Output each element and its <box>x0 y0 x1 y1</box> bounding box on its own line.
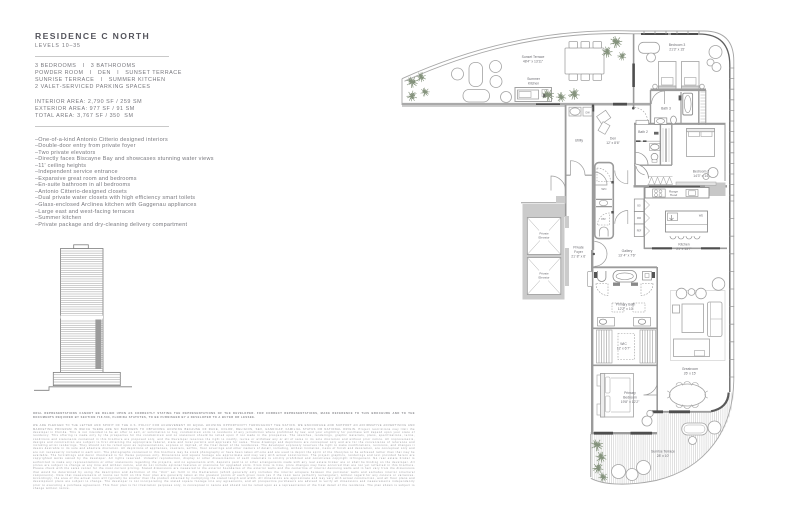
svg-text:Sunset Terrace: Sunset Terrace <box>522 55 545 59</box>
svg-text:28' x 10': 28' x 10' <box>657 454 670 458</box>
svg-text:WD: WD <box>699 213 703 217</box>
svg-text:19'8" x 12'2": 19'8" x 12'2" <box>621 400 640 404</box>
svg-text:Elevator: Elevator <box>538 235 549 239</box>
svg-text:Primary: Primary <box>624 391 636 395</box>
svg-text:Sunrise Terrace: Sunrise Terrace <box>651 450 675 454</box>
svg-text:21'3" x 15': 21'3" x 15' <box>669 48 685 52</box>
svg-text:BO: BO <box>637 206 641 208</box>
svg-text:12' x 6'7": 12' x 6'7" <box>617 347 631 351</box>
svg-text:Greatroom: Greatroom <box>682 367 698 371</box>
svg-text:Utility: Utility <box>575 139 584 143</box>
svg-text:48'4" x 13'11": 48'4" x 13'11" <box>523 60 544 64</box>
svg-text:Bedroom 2: Bedroom 2 <box>693 170 710 174</box>
svg-text:12'2" x 10': 12'2" x 10' <box>618 307 634 311</box>
svg-text:12' x 8'6": 12' x 8'6" <box>606 141 620 145</box>
svg-text:Kitchen: Kitchen <box>678 243 689 247</box>
svg-text:Bath 3: Bath 3 <box>661 107 671 111</box>
svg-text:14'3" x 14': 14'3" x 14' <box>693 174 709 178</box>
svg-text:Elevator: Elevator <box>538 275 549 279</box>
svg-text:26' x 15': 26' x 15' <box>684 372 697 376</box>
svg-text:Foyer: Foyer <box>574 250 584 254</box>
svg-text:Gallery: Gallery <box>622 249 633 253</box>
svg-text:OW: OW <box>585 110 590 114</box>
svg-text:Den: Den <box>610 137 616 141</box>
svg-text:Bath 2: Bath 2 <box>638 130 648 134</box>
svg-text:Bedroom 3: Bedroom 3 <box>669 43 686 47</box>
svg-text:Private: Private <box>573 246 584 250</box>
svg-text:21' 8" x 6': 21' 8" x 6' <box>571 255 586 259</box>
svg-text:PR: PR <box>601 217 606 221</box>
svg-text:Bedroom: Bedroom <box>623 396 637 400</box>
svg-text:13' 4" x 7'6": 13' 4" x 7'6" <box>618 254 636 258</box>
svg-text:21' x 13'7": 21' x 13'7" <box>676 247 692 251</box>
svg-text:WIC: WIC <box>620 342 627 346</box>
svg-text:Hood: Hood <box>670 193 678 197</box>
svg-text:REF: REF <box>637 231 642 233</box>
svg-text:Primary Bath: Primary Bath <box>616 303 636 307</box>
svg-text:WC: WC <box>601 187 607 191</box>
svg-text:Kitchen: Kitchen <box>528 81 539 85</box>
